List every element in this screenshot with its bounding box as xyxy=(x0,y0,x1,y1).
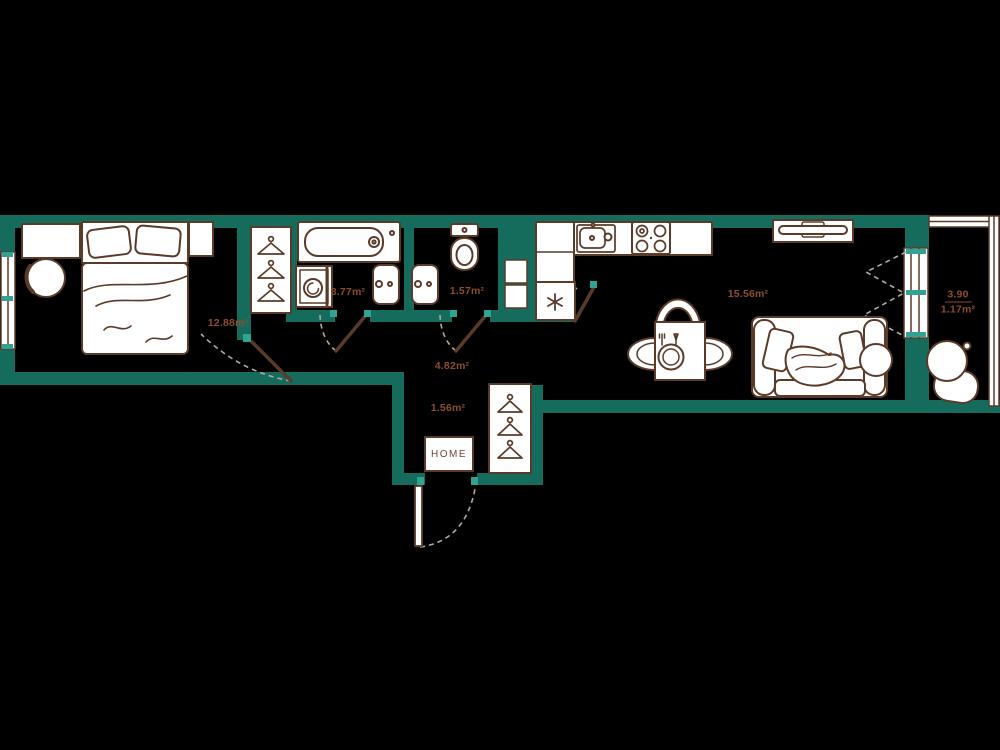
balcony-area-reduced: 1.17m² xyxy=(941,304,975,316)
wall-wet-a xyxy=(297,310,335,322)
kitchen-door-leaf xyxy=(575,287,594,321)
entrance-door-swing-arc xyxy=(420,489,475,547)
kitchen-living-area-label: 15.56m² xyxy=(728,288,769,300)
bed xyxy=(82,222,188,354)
wall-vestibule-bottom-right xyxy=(477,473,543,485)
wall-balcony-lower xyxy=(905,336,929,400)
coffee-table xyxy=(860,344,892,376)
nightstand xyxy=(189,222,213,256)
bathtub xyxy=(298,222,400,262)
entry-wardrobe xyxy=(489,384,531,473)
wall-vestibule-left xyxy=(392,385,404,473)
bathroom-area-label: 3.77m² xyxy=(331,286,365,298)
floor-plan-drawing xyxy=(0,0,1000,750)
dining-chair-top xyxy=(656,299,700,322)
wc-area-label: 1.57m² xyxy=(450,285,484,297)
wc-sink xyxy=(412,265,438,304)
pillow xyxy=(86,226,131,259)
tv xyxy=(779,226,847,234)
desk-chair xyxy=(27,259,65,297)
wall-bottom-west xyxy=(0,372,404,385)
bedroom-window xyxy=(1,252,15,349)
entrance-door-leaf xyxy=(415,486,422,546)
pillow xyxy=(135,225,181,257)
bathroom-sink xyxy=(373,265,399,304)
plate xyxy=(659,345,684,370)
balcony-area-total: 3.90 xyxy=(944,289,971,303)
toilet xyxy=(451,224,478,270)
wall-bottom-east xyxy=(528,400,1000,413)
balcony-door-window xyxy=(904,248,928,338)
entry-area-label: 1.56m² xyxy=(431,402,465,414)
wall-left-upper xyxy=(0,226,15,254)
hall-area-label: 4.82m² xyxy=(435,360,469,372)
balcony-glazing-top xyxy=(929,216,990,227)
tv-stand xyxy=(773,220,853,242)
dining-chair-left xyxy=(628,338,655,370)
balcony-area-label: 3.90 1.17m² xyxy=(941,289,975,316)
wc-door-leaf xyxy=(456,314,487,351)
fridge xyxy=(536,282,575,320)
doormat: HOME xyxy=(424,436,474,472)
dining-chair-right xyxy=(705,338,732,370)
kitchen-cabinets xyxy=(536,222,574,282)
balcony-chair xyxy=(927,341,980,405)
bathroom-door-leaf xyxy=(336,314,367,351)
hall-wardrobe xyxy=(251,227,291,313)
wall-wet-c xyxy=(490,310,498,322)
stove xyxy=(632,222,670,254)
kitchen-sink xyxy=(577,224,615,253)
doormat-text: HOME xyxy=(431,449,467,460)
washing-machine xyxy=(296,266,332,307)
floor-plan-canvas: 12.88m² 3.77m² 1.57m² 15.56m² 4.82m² 1.5… xyxy=(0,0,1000,750)
desk xyxy=(22,224,80,258)
balcony-glazing-right xyxy=(989,216,999,406)
bed-body xyxy=(82,263,188,354)
bedroom-area-label: 12.88m² xyxy=(208,317,249,329)
